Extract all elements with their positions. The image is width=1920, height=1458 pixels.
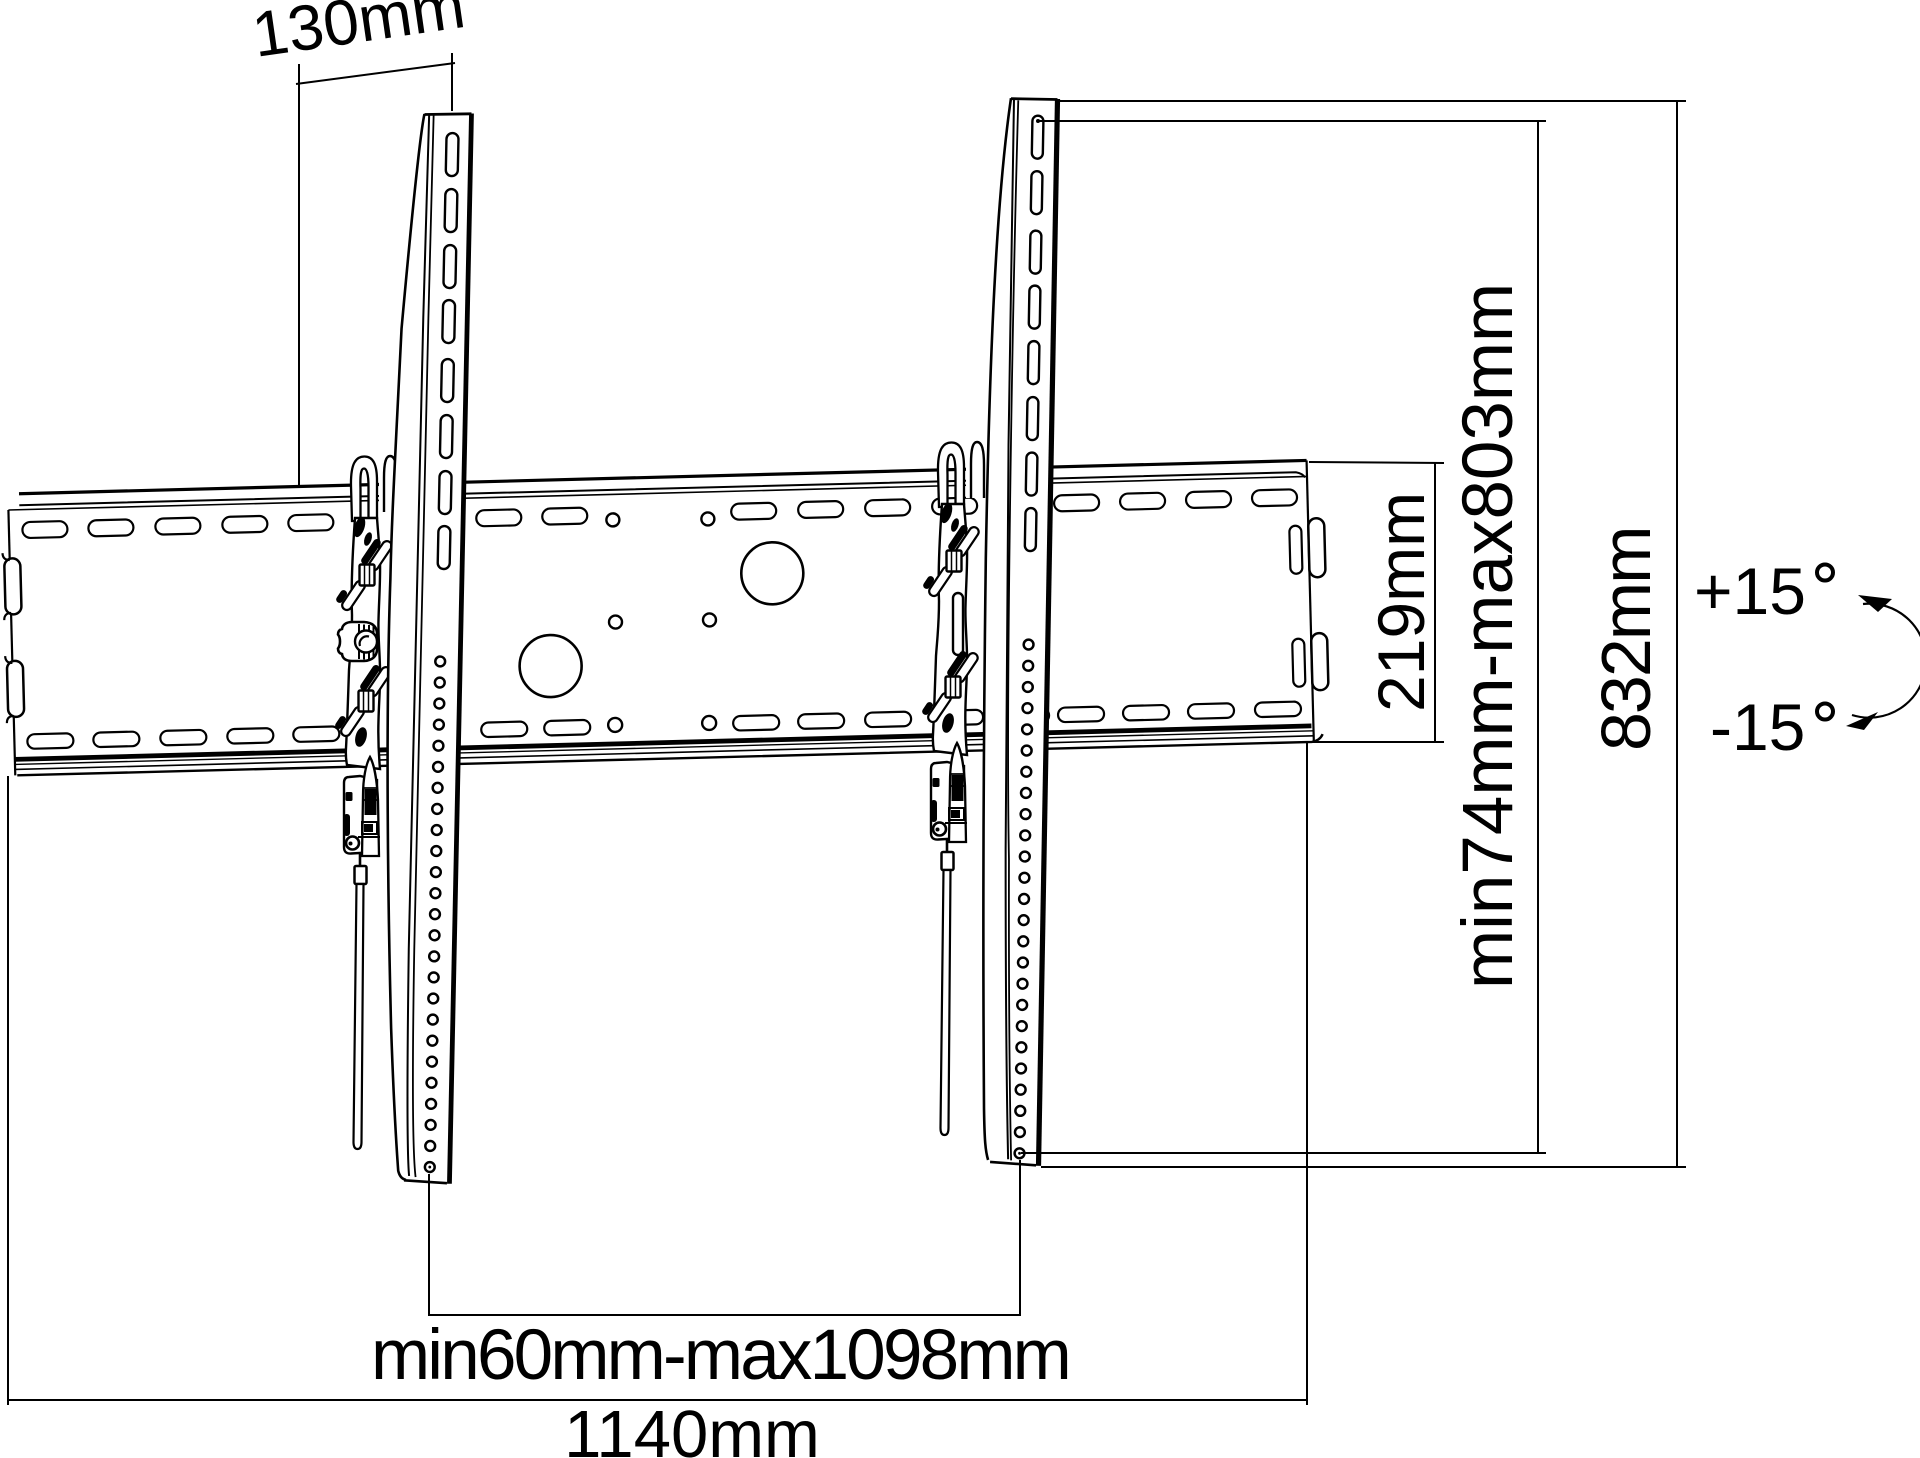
- svg-text:832mm: 832mm: [1587, 528, 1665, 751]
- svg-text:+15: +15: [1694, 554, 1806, 628]
- svg-text:min74mm-max803mm: min74mm-max803mm: [1449, 283, 1528, 989]
- svg-text:1140mm: 1140mm: [564, 1397, 820, 1458]
- svg-text:min60mm-max1098mm: min60mm-max1098mm: [371, 1316, 1069, 1395]
- svg-text:219mm: 219mm: [1364, 492, 1438, 712]
- svg-text:-15: -15: [1710, 690, 1805, 764]
